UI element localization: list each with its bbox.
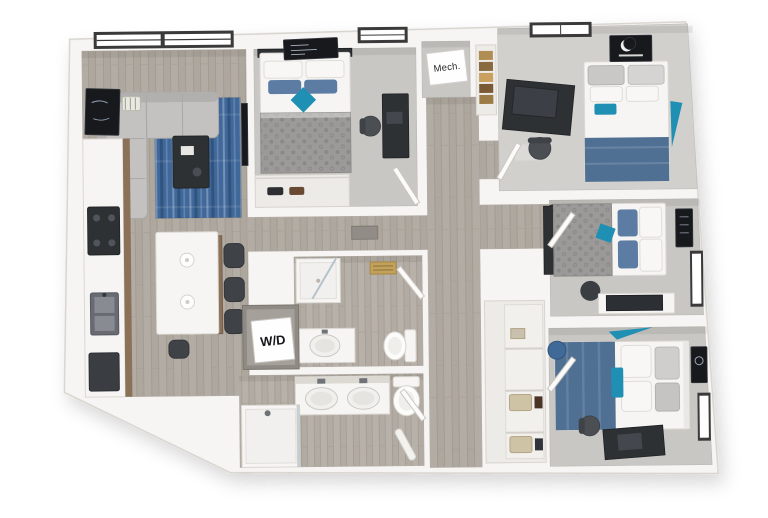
pillow <box>264 61 302 78</box>
pillow <box>621 345 651 377</box>
shoes <box>267 187 283 195</box>
hallway-bookshelf <box>476 45 497 115</box>
shoes <box>289 187 304 195</box>
blue-pillow <box>618 240 638 268</box>
floor-plan-canvas: Mech. <box>0 0 768 518</box>
book <box>479 84 493 93</box>
cooktop <box>87 207 120 255</box>
coffee-table <box>173 136 210 188</box>
duvet <box>260 112 351 173</box>
pillow <box>621 381 651 411</box>
desk <box>603 425 665 460</box>
basket <box>510 436 532 452</box>
blanket <box>585 137 669 182</box>
bed <box>258 48 353 173</box>
shadow <box>422 41 470 48</box>
book <box>479 73 493 82</box>
pillow <box>639 207 661 237</box>
bar-stool <box>224 277 244 301</box>
bedroom-2-doorway-floor <box>479 141 499 179</box>
book <box>479 95 493 104</box>
laptop <box>617 433 642 451</box>
desk <box>382 94 409 158</box>
bed <box>555 341 690 430</box>
basket <box>509 394 531 410</box>
shower <box>242 405 301 468</box>
bar-stool <box>225 309 245 333</box>
tv <box>241 103 248 165</box>
headboard <box>683 341 690 429</box>
shoes <box>534 396 542 408</box>
wall-art <box>675 209 692 247</box>
desk-chair <box>579 416 600 436</box>
double-vanity <box>295 376 389 415</box>
entry-corridor-floor <box>248 216 428 252</box>
closet <box>255 174 349 207</box>
hallway-floor <box>426 97 482 468</box>
desk <box>502 79 574 135</box>
gray-pillow <box>628 65 664 84</box>
bedroom-2-window <box>530 22 592 38</box>
pillow <box>626 86 658 101</box>
faucet <box>317 379 325 384</box>
accent-pillow <box>594 104 616 115</box>
laptop <box>606 295 662 311</box>
door-mat <box>352 226 378 239</box>
vanity-sink <box>299 328 355 363</box>
living-room-window <box>94 31 234 49</box>
book <box>479 51 493 60</box>
gray-pillow <box>588 65 624 84</box>
duffel-bag <box>548 341 566 359</box>
blue-pillow <box>268 80 301 94</box>
window <box>697 393 711 441</box>
floor-plan: Mech. <box>0 0 768 518</box>
box <box>511 329 525 339</box>
kitchen-island <box>156 232 223 335</box>
mech-room: Mech. <box>426 49 468 85</box>
wall-art <box>610 35 652 61</box>
shelving <box>504 304 544 458</box>
blue-pillow <box>617 209 637 236</box>
pillow <box>306 60 344 77</box>
unit: Mech. <box>61 21 719 481</box>
book <box>181 146 194 155</box>
wall-art <box>85 89 120 136</box>
ceiling-vent <box>370 262 396 274</box>
laptop <box>386 112 402 124</box>
wall-art <box>283 38 338 60</box>
bedroom-1-window <box>358 27 408 44</box>
bedroom-3-doorway-floor <box>479 204 549 249</box>
bar-stool <box>224 243 244 267</box>
wd-closet: W/D <box>242 305 299 370</box>
pillow <box>640 239 662 271</box>
wd-label: W/D <box>260 332 287 349</box>
kitchen-sink <box>90 293 118 335</box>
gray-pillow <box>655 383 679 411</box>
blue-pillow <box>304 79 337 93</box>
pillow <box>590 86 622 101</box>
dishwasher <box>89 353 119 391</box>
monitor <box>512 86 558 118</box>
wall-art <box>691 347 707 383</box>
bed <box>584 61 669 182</box>
storage-closet <box>504 304 544 458</box>
shoes <box>535 438 543 450</box>
shadow <box>426 97 478 105</box>
faucet <box>359 378 367 383</box>
accent-pillow <box>611 368 623 398</box>
toilet <box>384 330 416 362</box>
faucet <box>322 330 328 334</box>
shower <box>296 258 340 302</box>
desk-chair <box>360 116 381 136</box>
gray-pillow <box>655 347 679 379</box>
window <box>690 251 704 307</box>
bar-stool <box>169 340 189 358</box>
book <box>479 62 493 71</box>
